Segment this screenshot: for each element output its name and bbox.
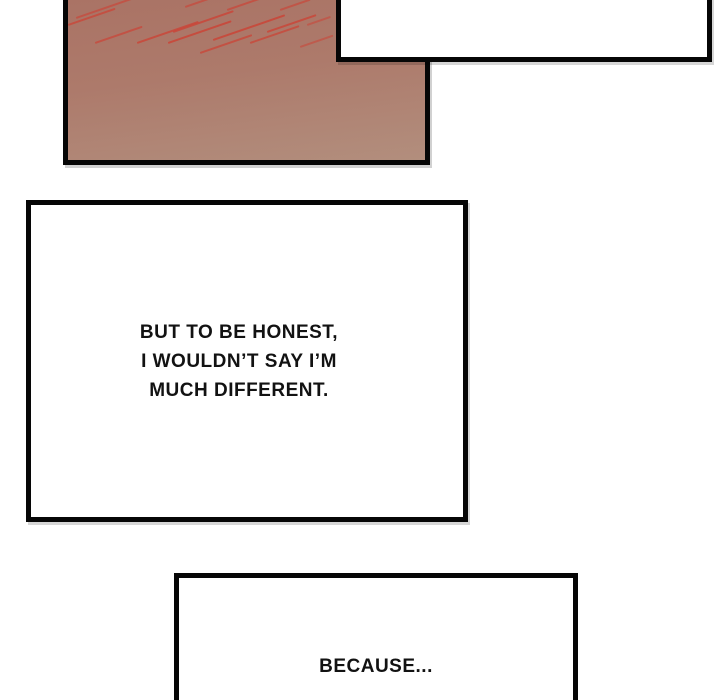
speech-box-middle: BUT TO BE HONEST, I WOULDN’T SAY I’M MUC…: [26, 200, 468, 522]
speed-line: [280, 0, 311, 11]
speech-box-bottom: BECAUSE...: [174, 573, 578, 700]
speed-line: [227, 0, 273, 11]
speech-text-line: MUCH DIFFERENT.: [140, 376, 338, 405]
speed-line: [200, 34, 253, 54]
caption-box-top-right: [336, 0, 712, 62]
speech-text-bottom: BECAUSE...: [319, 652, 433, 681]
comic-page: BUT TO BE HONEST, I WOULDN’T SAY I’M MUC…: [0, 0, 720, 700]
speech-text-line: I WOULDN’T SAY I’M: [140, 347, 338, 376]
speed-line: [185, 0, 233, 8]
speech-text-line: BUT TO BE HONEST,: [140, 318, 338, 347]
speed-line: [76, 0, 133, 19]
speech-text-middle: BUT TO BE HONEST, I WOULDN’T SAY I’M MUC…: [140, 318, 338, 405]
speed-line: [95, 26, 143, 44]
speed-line: [300, 35, 334, 48]
